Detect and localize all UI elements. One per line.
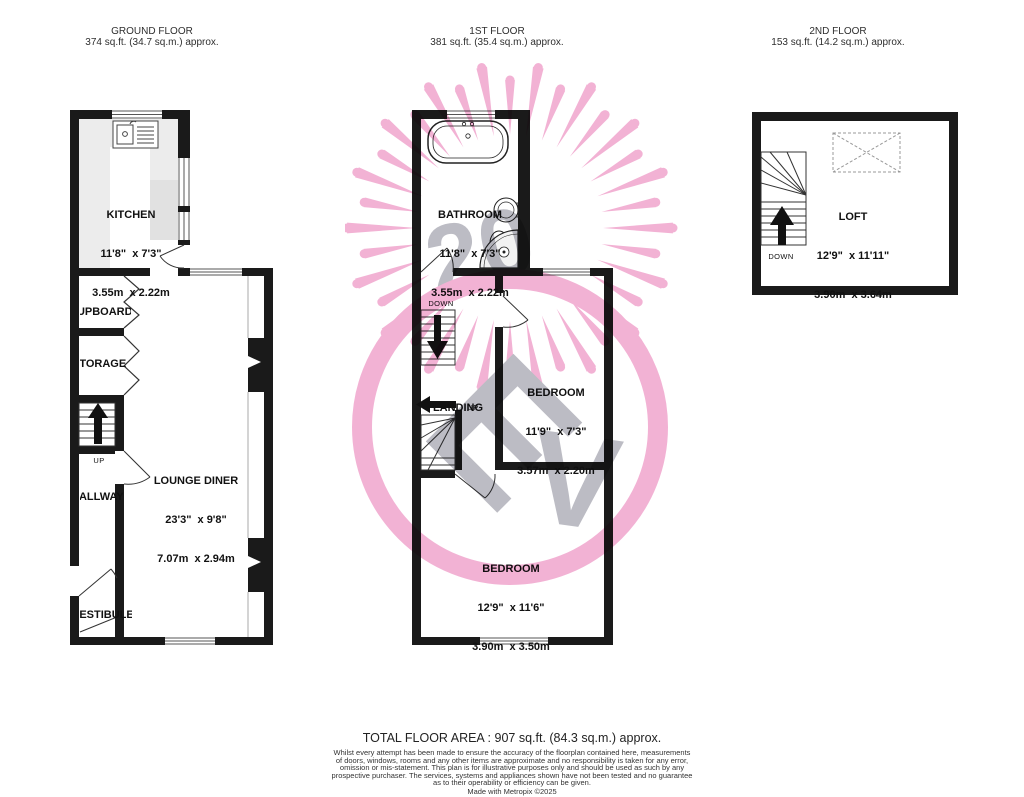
bedroom1-label: BEDROOM 11'9" x 7'3" 3.57m x 2.20m — [517, 361, 595, 504]
kitchen-label: KITCHEN 11'8" x 7'3" 3.55m x 2.22m — [92, 183, 170, 326]
loft-label: LOFT 12'9" x 11'11" 3.90m x 3.64m — [814, 185, 892, 328]
up-arrow-icon — [770, 206, 794, 245]
sf-down-label: DOWN — [768, 252, 793, 261]
ground-floor-title: GROUND FLOOR — [85, 26, 218, 37]
ground-floor-header: GROUND FLOOR 374 sq.ft. (34.7 sq.m.) app… — [85, 26, 218, 48]
vestibule-label: VESTIBULE — [80, 609, 132, 623]
bedroom2-label: BEDROOM 12'9" x 11'6" 3.90m x 3.50m — [472, 537, 550, 680]
second-floor-title: 2ND FLOOR — [771, 26, 904, 37]
bathtub-icon — [428, 121, 508, 163]
ff-up-label: UP — [467, 403, 478, 412]
total-floor-area: TOTAL FLOOR AREA : 907 sq.ft. (84.3 sq.m… — [363, 731, 662, 745]
first-floor-header: 1ST FLOOR 381 sq.ft. (35.4 sq.m.) approx… — [430, 26, 563, 48]
kitchen-sink-icon — [113, 121, 158, 148]
ff-down-label: DOWN — [428, 299, 453, 308]
hallway-label: HALLWAY — [80, 491, 126, 505]
gf-up-label: UP — [93, 456, 104, 465]
ground-floor-area: 374 sq.ft. (34.7 sq.m.) approx. — [85, 37, 218, 48]
storage-label: STORAGE — [80, 358, 126, 372]
lounge-diner-label: LOUNGE DINER 23'3" x 9'8" 7.07m x 2.94m — [154, 449, 238, 592]
disclaimer: Whilst every attempt has been made to en… — [332, 749, 693, 796]
first-floor-title: 1ST FLOOR — [430, 26, 563, 37]
second-floor-header: 2ND FLOOR 153 sq.ft. (14.2 sq.m.) approx… — [771, 26, 904, 48]
first-floor-area: 381 sq.ft. (35.4 sq.m.) approx. — [430, 37, 563, 48]
bifold-door-icon — [124, 336, 139, 395]
second-floor-area: 153 sq.ft. (14.2 sq.m.) approx. — [771, 37, 904, 48]
hatched-area-icon — [833, 133, 900, 172]
metropix-credit: Made with Metropix ©2025 — [332, 788, 693, 796]
cupboard-label: CUPBOARD — [80, 306, 131, 320]
floorplan-page: GROUND FLOOR 374 sq.ft. (34.7 sq.m.) app… — [0, 0, 1024, 797]
